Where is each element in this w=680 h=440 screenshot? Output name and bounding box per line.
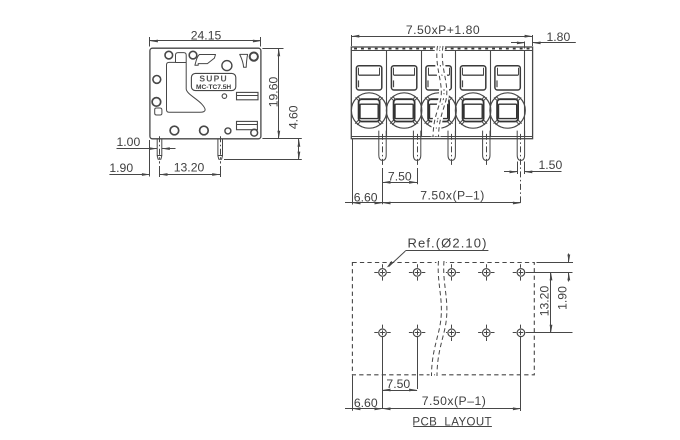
svg-text:7.50x(P–1): 7.50x(P–1) bbox=[422, 394, 487, 408]
svg-text:1.90: 1.90 bbox=[109, 161, 133, 175]
svg-text:1.90: 1.90 bbox=[555, 286, 569, 310]
svg-text:6.60: 6.60 bbox=[354, 396, 378, 410]
svg-text:1.00: 1.00 bbox=[117, 135, 141, 149]
svg-text:MC-TC7.5H: MC-TC7.5H bbox=[196, 84, 231, 91]
svg-text:24.15: 24.15 bbox=[191, 28, 222, 42]
svg-text:6.60: 6.60 bbox=[354, 190, 378, 204]
svg-text:SUPU: SUPU bbox=[199, 74, 227, 84]
svg-text:7.50: 7.50 bbox=[386, 377, 410, 391]
svg-text:19.60: 19.60 bbox=[266, 77, 280, 108]
svg-text:1.50: 1.50 bbox=[539, 158, 563, 172]
svg-text:13.20: 13.20 bbox=[174, 161, 205, 175]
svg-text:13.20: 13.20 bbox=[538, 286, 552, 317]
svg-text:7.50: 7.50 bbox=[388, 170, 412, 184]
svg-text:7.50xP+1.80: 7.50xP+1.80 bbox=[406, 23, 480, 37]
svg-text:Ref.(Ø2.10): Ref.(Ø2.10) bbox=[408, 235, 488, 250]
svg-text:1.80: 1.80 bbox=[547, 30, 571, 44]
svg-text:7.50x(P–1): 7.50x(P–1) bbox=[420, 189, 485, 203]
svg-text:4.60: 4.60 bbox=[286, 105, 300, 129]
